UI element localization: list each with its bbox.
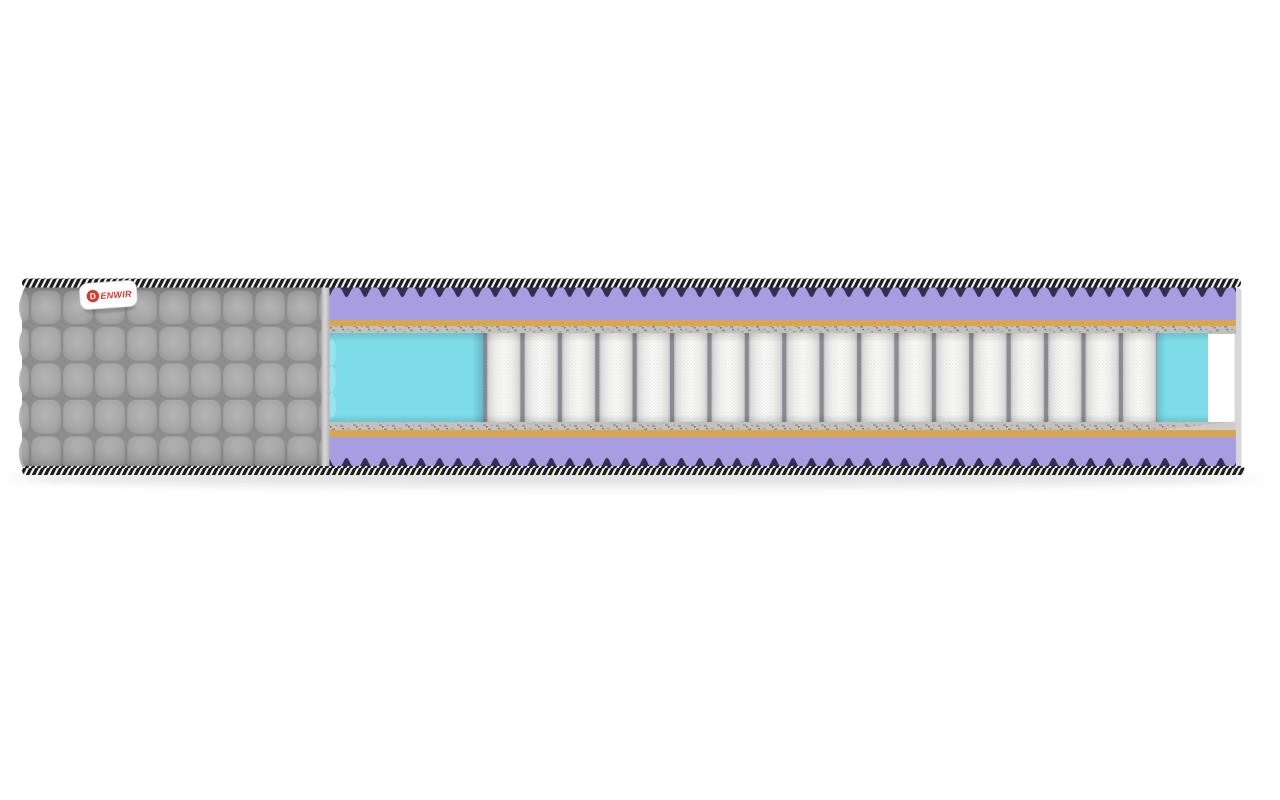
piping-top	[22, 279, 1241, 288]
cover-cut-edge	[322, 286, 330, 468]
product-image: D ENWIR	[0, 0, 1280, 800]
cover-section	[19, 281, 330, 473]
bottom-foam-wave-layer	[328, 437, 1236, 470]
brand-tag: D ENWIR	[79, 280, 138, 314]
pocket-springs	[483, 333, 1157, 424]
piping-bottom	[22, 466, 1245, 475]
bottom-pad-tan-layer	[328, 430, 1236, 438]
brand-logo-letter: D	[89, 291, 96, 301]
top-pad-tan-layer	[328, 320, 1236, 327]
top-foam-wave-layer	[328, 285, 1236, 321]
bottom-felt-layer	[328, 422, 1236, 431]
top-felt-layer	[328, 326, 1236, 334]
edge-foam-right	[1157, 333, 1208, 424]
mattress: D ENWIR	[19, 279, 1245, 476]
spring-top-shading	[329, 333, 1208, 342]
edge-foam-left	[327, 333, 484, 424]
mattress-cross-section-render: D ENWIR	[0, 0, 1280, 800]
